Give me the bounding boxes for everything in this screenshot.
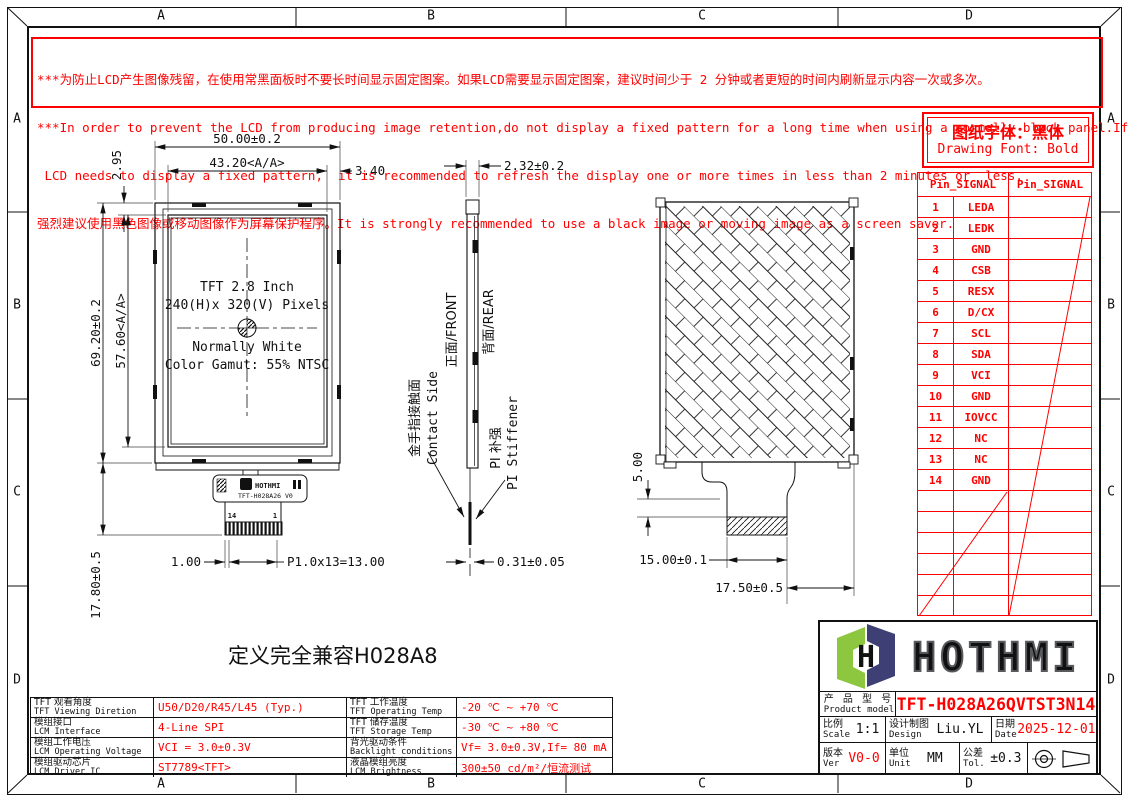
spec-label-en: TFT Viewing Diretion bbox=[34, 708, 150, 717]
side-front-label: 正面/FRONT bbox=[445, 293, 460, 368]
pin-row-empty bbox=[917, 532, 1092, 553]
pin-row: 9VCI bbox=[917, 364, 1092, 385]
front-label-size: TFT 2.8 Inch bbox=[200, 280, 294, 295]
spec-label-en: LCM Driver IC bbox=[34, 768, 150, 777]
title-block: H HOTHMI 产 品 型 号 Product model TFT-H028A… bbox=[818, 620, 1098, 775]
dim-stiffener-width: 15.00±0.1 bbox=[639, 552, 707, 567]
pin-row-empty bbox=[917, 574, 1092, 595]
spec-value: -20 ℃ ~ +70 ℃ bbox=[457, 698, 612, 717]
pi-stiffener-en-label: PI Stiffener bbox=[506, 396, 521, 490]
dim-thickness: 2.32±0.2 bbox=[504, 158, 564, 173]
pin-row-empty bbox=[917, 511, 1092, 532]
unit-label-cn: 单位 bbox=[889, 748, 911, 759]
side-view-labels: 正面/FRONT 背面/REAR 金手指接触面 Contact Side PI … bbox=[407, 289, 521, 490]
spec-label-en: Backlight conditions bbox=[350, 748, 453, 757]
version-unit-tol-row: 版本Ver V0-0 单位Unit MM 公差Tol. ±0.3 bbox=[820, 743, 1096, 774]
pin-row: 2LEDK bbox=[917, 217, 1092, 238]
side-dimension-labels: 2.32±0.2 0.31±0.05 bbox=[497, 158, 565, 569]
dim-right-margin: 3.40 bbox=[355, 163, 385, 178]
pin-row: 13NC bbox=[917, 448, 1092, 469]
pin-row: 10GND bbox=[917, 385, 1092, 406]
dim-tail-length: 17.80±0.5 bbox=[88, 551, 103, 619]
spec-value: ST7789<TFT> bbox=[154, 758, 347, 777]
rear-fpc-tail bbox=[702, 462, 795, 535]
spec-label-en: TFT Storage Temp bbox=[350, 728, 453, 737]
pin-row: 8SDA bbox=[917, 343, 1092, 364]
spec-value: -30 ℃ ~ +80 ℃ bbox=[457, 718, 612, 737]
pi-stiffener-cn-label: PI 补强 bbox=[489, 427, 504, 469]
front-label-gamut: Color Gamut: 55% NTSC bbox=[165, 358, 329, 373]
compatibility-note: 定义完全兼容H028A8 bbox=[228, 640, 438, 670]
spec-value: Vf= 3.0±0.3V,If= 80 mA bbox=[457, 738, 612, 757]
dim-top-margin: 2.95 bbox=[109, 150, 124, 180]
fpc-pin1-label: 1 bbox=[273, 512, 277, 520]
version-label-cn: 版本 bbox=[823, 748, 843, 759]
tolerance-value: ±0.3 bbox=[985, 751, 1027, 766]
pin-table-header-left: Pin_SIGNAL bbox=[918, 173, 1009, 196]
spec-value: U50/D20/R45/L45 (Typ.) bbox=[154, 698, 347, 717]
projection-symbol-icon bbox=[1031, 745, 1093, 773]
brand-wordmark: HOTHMI bbox=[912, 635, 1081, 681]
product-model-row: 产 品 型 号 Product model TFT-H028A26QVTST3N… bbox=[820, 692, 1096, 717]
pin-signal-table: Pin_SIGNAL Pin_SIGNAL 1LEDA 2LEDK 3GND 4… bbox=[917, 172, 1092, 616]
logo-h-glyph: H bbox=[857, 640, 875, 675]
spec-label-en: LCM Operating Voltage bbox=[34, 748, 150, 757]
date-label-en: Date bbox=[995, 730, 1017, 740]
fpc-tail-graphics: H HOTHMI TFT-H028A26 V0 14 1 bbox=[217, 478, 301, 520]
pin-row: 1LEDA bbox=[917, 196, 1092, 217]
spec-value: 300±50 cd/m²/恒流测试 bbox=[457, 758, 612, 777]
spec-row: 模组工作电压LCM Operating Voltage VCI = 3.0±0.… bbox=[31, 738, 612, 758]
dim-active-height: 57.60<A/A> bbox=[113, 293, 128, 368]
fpc-model-text: TFT-H028A26 V0 bbox=[238, 492, 293, 500]
scale-label-cn: 比例 bbox=[823, 719, 850, 730]
spec-value: 4-Line SPI bbox=[154, 718, 347, 737]
dim-stiffener-drop: 5.00 bbox=[630, 452, 645, 482]
contact-side-en-label: Contact Side bbox=[426, 371, 441, 465]
fpc-pin14-label: 14 bbox=[228, 512, 236, 520]
pin-row: 6D/CX bbox=[917, 301, 1092, 322]
pin-row-empty bbox=[917, 490, 1092, 511]
pin-row: 12NC bbox=[917, 427, 1092, 448]
unit-value: MM bbox=[911, 751, 959, 766]
side-view-tape-marks bbox=[473, 240, 478, 423]
spec-label-en: TFT Operating Temp bbox=[350, 708, 453, 717]
spec-label-en: LCM Interface bbox=[34, 728, 150, 737]
dim-pin-pitch: P1.0x13=13.00 bbox=[287, 554, 385, 569]
scale-design-date-row: 比例Scale 1:1 设计制图Design Liu.YL 日期Date 202… bbox=[820, 717, 1096, 743]
design-label-en: Design bbox=[889, 730, 929, 740]
spec-row: 模组驱动芯片LCM Driver IC ST7789<TFT> 液晶模组亮度LC… bbox=[31, 758, 612, 777]
rear-view-outline bbox=[656, 198, 858, 468]
tol-label-en: Tol. bbox=[963, 759, 985, 769]
brand-logo: H HOTHMI bbox=[820, 622, 1096, 692]
dim-fpc-thickness: 0.31±0.05 bbox=[497, 554, 565, 569]
date-value: 2025-12-01 bbox=[1017, 722, 1096, 737]
pin-row: 5RESX bbox=[917, 280, 1092, 301]
version-label-en: Ver bbox=[823, 759, 843, 769]
date-label-cn: 日期 bbox=[995, 719, 1017, 730]
dim-pin-offset: 1.00 bbox=[171, 554, 201, 569]
design-label-cn: 设计制图 bbox=[889, 719, 929, 730]
spec-row: 模组接口LCM Interface 4-Line SPI TFT 储存温度TFT… bbox=[31, 718, 612, 738]
fpc-brand-text: HOTHMI bbox=[255, 482, 280, 490]
version-value: V0-0 bbox=[843, 751, 885, 766]
pin-table-header-right: Pin_SIGNAL bbox=[1009, 173, 1091, 196]
dim-tail-width: 17.50±0.5 bbox=[715, 580, 783, 595]
pin-row-empty bbox=[917, 553, 1092, 574]
spec-value: VCI = 3.0±0.3V bbox=[154, 738, 347, 757]
scale-label-en: Scale bbox=[823, 730, 850, 740]
front-label-resolution: 240(H)x 320(V) Pixels bbox=[165, 298, 329, 313]
side-rear-label: 背面/REAR bbox=[482, 289, 497, 355]
contact-side-cn-label: 金手指接触面 bbox=[407, 379, 423, 457]
drawing-sheet: A B C D A B C D A B C D A B C D ***为防止LC… bbox=[0, 0, 1128, 801]
front-label-mode: Normally White bbox=[192, 340, 302, 355]
center-mark-icon bbox=[238, 319, 256, 337]
pin-row-empty bbox=[917, 595, 1092, 616]
dim-active-width: 43.20<A/A> bbox=[209, 155, 284, 170]
pin-row: 7SCL bbox=[917, 322, 1092, 343]
product-model-value: TFT-H028A26QVTST3N14 bbox=[896, 695, 1096, 714]
fpc-logo-h-icon: H bbox=[243, 481, 248, 491]
pin-row: 14GND bbox=[917, 469, 1092, 490]
spec-row: TFT 观看角度TFT Viewing Diretion U50/D20/R45… bbox=[31, 698, 612, 718]
scale-value: 1:1 bbox=[850, 722, 885, 737]
side-view-outline bbox=[466, 200, 479, 576]
product-label-cn: 产 品 型 号 bbox=[824, 694, 895, 705]
dim-height: 69.20±0.2 bbox=[88, 299, 103, 367]
spec-label-en: LCM Brightness bbox=[350, 768, 453, 777]
dim-width: 50.00±0.2 bbox=[213, 131, 281, 146]
spec-table: TFT 观看角度TFT Viewing Diretion U50/D20/R45… bbox=[30, 697, 613, 775]
designer-value: Liu.YL bbox=[929, 722, 991, 737]
product-label-en: Product model bbox=[824, 705, 894, 715]
pin-row: 3GND bbox=[917, 238, 1092, 259]
tol-label-cn: 公差 bbox=[963, 748, 985, 759]
pin-row: 4CSB bbox=[917, 259, 1092, 280]
pin-row: 11IOVCC bbox=[917, 406, 1092, 427]
side-extension-lines bbox=[466, 160, 479, 197]
unit-label-en: Unit bbox=[889, 759, 911, 769]
